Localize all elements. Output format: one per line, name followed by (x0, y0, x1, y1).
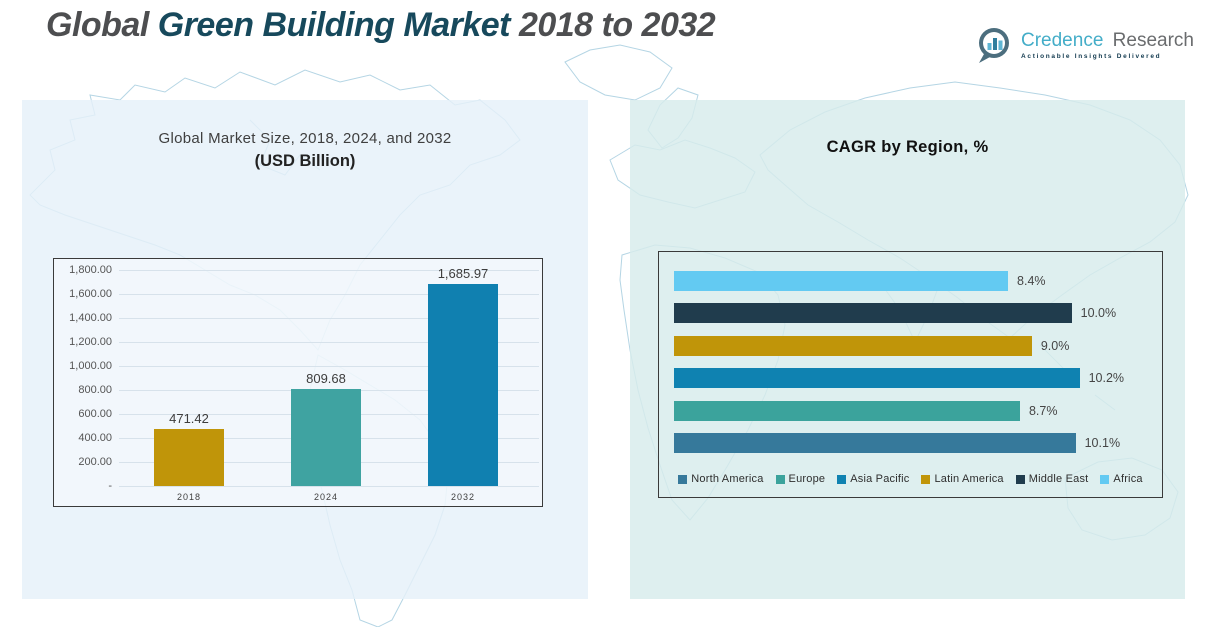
legend-label: Middle East (1029, 473, 1089, 485)
x-axis-category-label: 2024 (286, 492, 366, 502)
legend-swatch-africa (1100, 475, 1109, 484)
logo-brand-primary: Credence (1021, 30, 1103, 51)
bar-europe (674, 401, 1020, 421)
cagr-bar-chart: 8.4%10.0%9.0%10.2%8.7%10.1%North America… (658, 251, 1163, 498)
y-axis-tick-label: 1,800.00 (54, 264, 112, 276)
market-size-chart-title: Global Market Size, 2018, 2024, and 2032 (22, 130, 588, 147)
legend-item-europe: Europe (776, 473, 826, 485)
legend-swatch-latin-america (921, 475, 930, 484)
bar-value-label: 471.42 (129, 411, 249, 426)
x-axis-category-label: 2018 (149, 492, 229, 502)
legend-item-middle-east: Middle East (1016, 473, 1089, 485)
page-title-part3: 2018 to 2032 (519, 6, 715, 44)
chart-legend: North AmericaEuropeAsia PacificLatin Ame… (659, 473, 1162, 485)
bar-chart-speech-bubble-icon (974, 24, 1014, 66)
bar-latin-america (674, 336, 1032, 356)
market-size-chart-subtitle: (USD Billion) (22, 152, 588, 171)
bar-asia-pacific (674, 368, 1080, 388)
logo-text: Credence Research Actionable Insights De… (1021, 31, 1194, 60)
legend-item-africa: Africa (1100, 473, 1142, 485)
legend-item-asia-pacific: Asia Pacific (837, 473, 909, 485)
legend-label: Latin America (934, 473, 1003, 485)
bar-2018 (154, 429, 224, 486)
market-size-panel: Global Market Size, 2018, 2024, and 2032… (22, 100, 588, 599)
page-title-part1: Global (46, 6, 149, 44)
bar-value-label: 1,685.97 (403, 266, 523, 281)
legend-label: Asia Pacific (850, 473, 909, 485)
legend-swatch-europe (776, 475, 785, 484)
legend-swatch-north-america (678, 475, 687, 484)
bar-north-america (674, 433, 1076, 453)
y-axis-tick-label: 400.00 (54, 432, 112, 444)
cagr-panel: CAGR by Region, % 8.4%10.0%9.0%10.2%8.7%… (630, 100, 1185, 599)
x-axis-category-label: 2032 (423, 492, 503, 502)
legend-item-latin-america: Latin America (921, 473, 1003, 485)
market-size-bar-chart: 1,800.001,600.001,400.001,200.001,000.00… (53, 258, 543, 507)
bar-value-label: 8.7% (1029, 401, 1058, 421)
legend-label: Europe (789, 473, 826, 485)
y-axis-tick-label: 1,600.00 (54, 288, 112, 300)
logo-tagline: Actionable Insights Delivered (1021, 53, 1194, 60)
credence-research-logo: Credence Research Actionable Insights De… (974, 24, 1194, 66)
bar-2032 (428, 284, 498, 486)
cagr-chart-title: CAGR by Region, % (630, 138, 1185, 157)
bar-middle-east (674, 303, 1072, 323)
y-axis-tick-label: 600.00 (54, 408, 112, 420)
bar-value-label: 10.1% (1085, 433, 1120, 453)
logo-brand: Credence Research (1021, 31, 1194, 51)
logo-brand-secondary: Research (1113, 30, 1194, 51)
legend-swatch-asia-pacific (837, 475, 846, 484)
legend-item-north-america: North America (678, 473, 763, 485)
page-title: Global Green Building Market 2018 to 203… (46, 6, 715, 45)
bar-africa (674, 271, 1008, 291)
y-axis-tick-label: 1,400.00 (54, 312, 112, 324)
y-axis-tick-label: 200.00 (54, 456, 112, 468)
bar-value-label: 10.2% (1089, 368, 1124, 388)
bar-value-label: 8.4% (1017, 271, 1046, 291)
y-axis-tick-label: 1,000.00 (54, 360, 112, 372)
y-axis-tick-label: 1,200.00 (54, 336, 112, 348)
y-axis-tick-label: - (54, 480, 112, 492)
page-title-part2: Green Building Market (158, 6, 510, 44)
bar-value-label: 9.0% (1041, 336, 1070, 356)
legend-label: North America (691, 473, 763, 485)
y-gridline (119, 486, 539, 487)
bar-value-label: 10.0% (1081, 303, 1116, 323)
y-axis-tick-label: 800.00 (54, 384, 112, 396)
legend-label: Africa (1113, 473, 1142, 485)
legend-swatch-middle-east (1016, 475, 1025, 484)
bar-2024 (291, 389, 361, 486)
bar-value-label: 809.68 (266, 371, 386, 386)
